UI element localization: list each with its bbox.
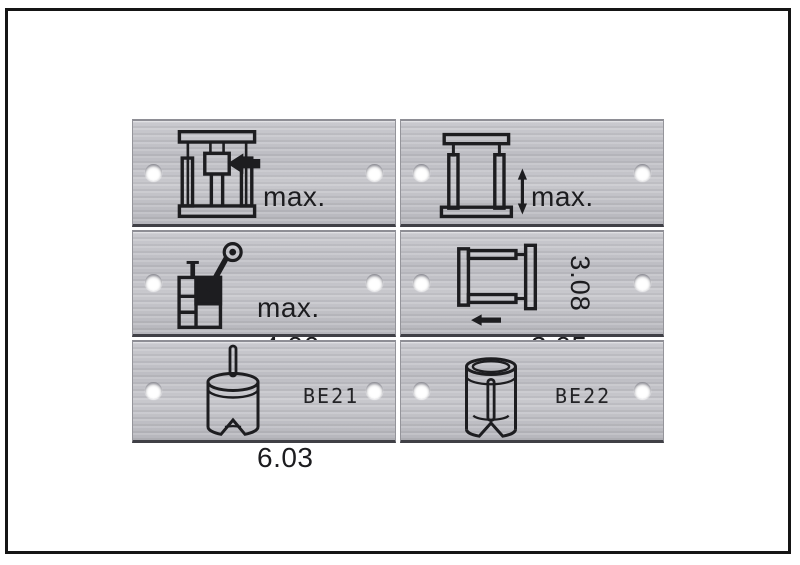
- mounting-hole: [366, 164, 383, 181]
- mounting-hole: [634, 274, 651, 291]
- plate-guide-3-08: 3.08: [400, 230, 664, 337]
- guide-frame-vertical-double-arrow-icon: [429, 129, 533, 221]
- text-line: max.: [257, 295, 348, 320]
- mounting-hole: [145, 382, 162, 399]
- rotated-text-block: 3.08: [559, 232, 599, 334]
- mounting-hole: [366, 274, 383, 291]
- plates-grid: max. 6 bar 4.06 max. 6 bar: [132, 119, 664, 443]
- mounting-hole: [145, 274, 162, 291]
- mounting-hole: [413, 382, 430, 399]
- text-line: max.: [263, 184, 329, 209]
- plate-be21: BE21: [132, 340, 396, 443]
- hand-oil-pump-icon: [165, 236, 259, 334]
- label-plates-photo: max. 6 bar 4.06 max. 6 bar: [0, 0, 800, 565]
- mounting-hole: [413, 164, 430, 181]
- guide-frame-horizontal-left-arrow-icon: [449, 240, 553, 328]
- text-line: 6.03: [257, 445, 348, 470]
- mounting-hole: [366, 382, 383, 399]
- mounting-hole: [145, 164, 162, 181]
- plate-number-rotated: 3.08: [564, 255, 595, 312]
- mounting-hole: [634, 382, 651, 399]
- plate-press-4-06: max. 6 bar 4.06: [132, 119, 396, 227]
- text-line: max.: [531, 184, 597, 209]
- plate-code-label: BE22: [555, 384, 611, 408]
- plate-code-label: BE21: [303, 384, 359, 408]
- plate-be22: BE22: [400, 340, 664, 443]
- mounting-hole: [413, 274, 430, 291]
- pin-cylinder-icon: [201, 344, 265, 444]
- press-ram-left-arrow-icon: [169, 127, 265, 221]
- mounting-hole: [634, 164, 651, 181]
- plate-guide-3-05: max. 6 bar 3.05: [400, 119, 664, 227]
- plate-oil-pump-6-03: max. 3,5 bar 6.03: [132, 230, 396, 337]
- socket-cylinder-icon: [459, 347, 523, 445]
